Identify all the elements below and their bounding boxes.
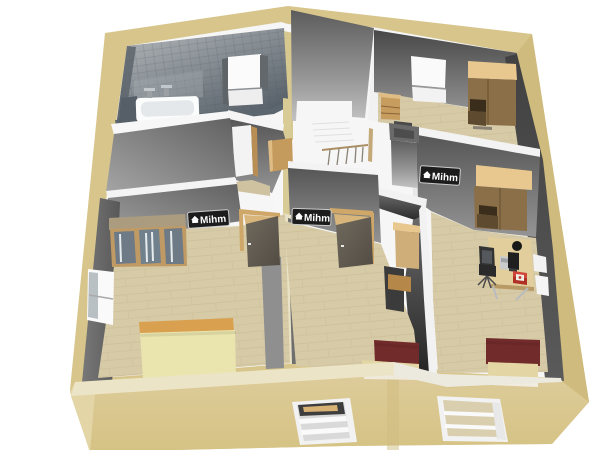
svg-text:Mihm: Mihm — [304, 213, 331, 225]
svg-text:Mihm: Mihm — [200, 214, 227, 227]
svg-text:Mihm: Mihm — [431, 171, 458, 184]
